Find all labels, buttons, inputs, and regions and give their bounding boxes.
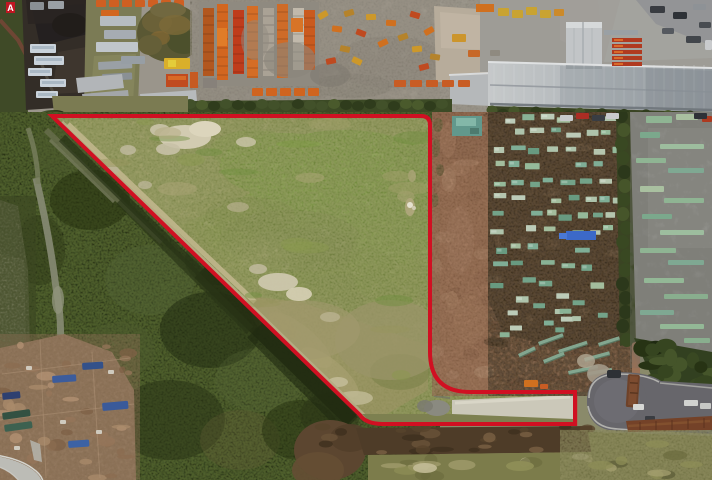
svg-text:A: A <box>7 3 14 13</box>
